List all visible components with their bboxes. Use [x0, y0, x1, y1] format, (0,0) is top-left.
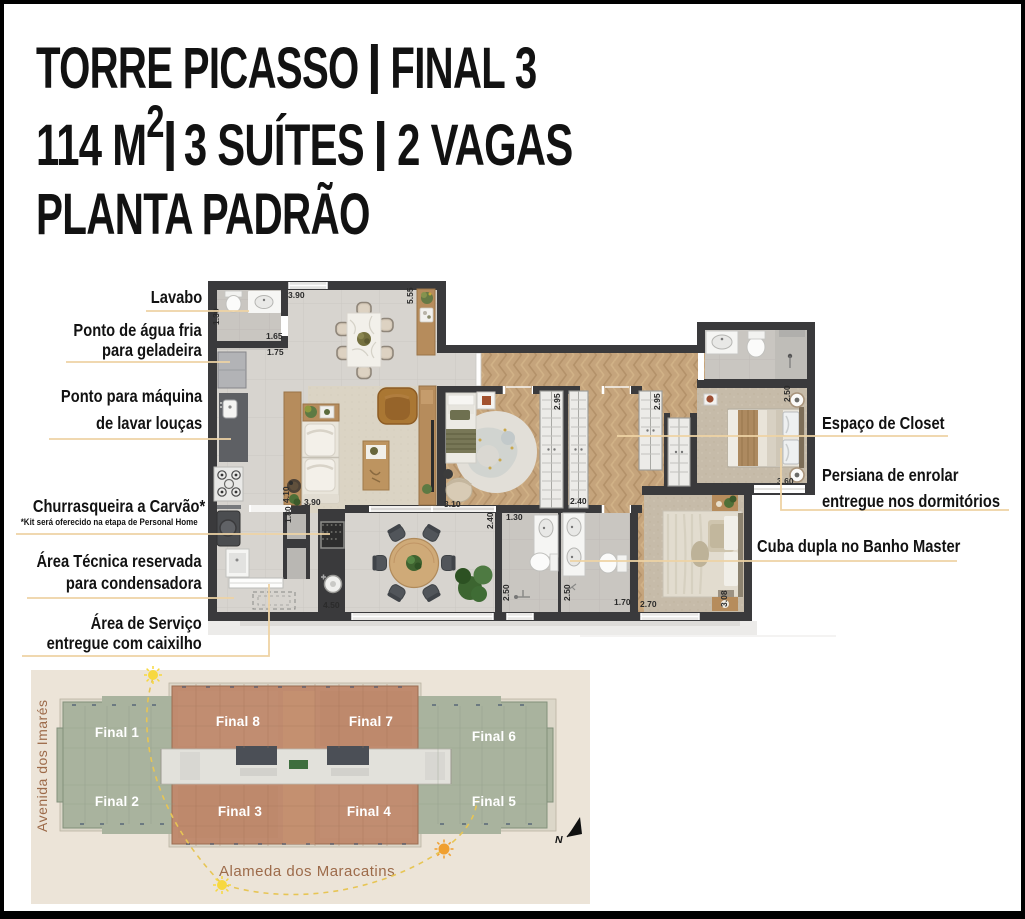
svg-text:1.70: 1.70 [614, 597, 631, 607]
svg-text:2.40: 2.40 [485, 512, 495, 529]
svg-text:Alameda dos Maracatins: Alameda dos Maracatins [219, 863, 395, 880]
svg-text:1.75: 1.75 [267, 347, 284, 357]
svg-text:Avenida dos Imarés: Avenida dos Imarés [34, 700, 50, 832]
svg-text:3.90: 3.90 [304, 497, 321, 507]
svg-text:2.70: 2.70 [640, 599, 657, 609]
svg-text:2.50: 2.50 [562, 584, 572, 601]
svg-text:3.10: 3.10 [444, 499, 461, 509]
svg-text:3.90: 3.90 [288, 290, 305, 300]
svg-text:Final 5: Final 5 [472, 794, 516, 809]
svg-text:Final 2: Final 2 [95, 794, 139, 809]
svg-text:5.55: 5.55 [405, 287, 415, 304]
svg-text:3.60: 3.60 [777, 476, 794, 486]
svg-text:2.95: 2.95 [652, 393, 662, 410]
svg-text:N: N [555, 834, 563, 846]
svg-text:Final 7: Final 7 [349, 714, 393, 729]
svg-text:Final 1: Final 1 [95, 725, 139, 740]
svg-text:2.40: 2.40 [570, 496, 587, 506]
svg-text:Final 4: Final 4 [347, 804, 391, 819]
svg-text:2.95: 2.95 [552, 393, 562, 410]
svg-text:Final 8: Final 8 [216, 714, 260, 729]
svg-text:3.08: 3.08 [719, 590, 729, 607]
svg-text:1.80: 1.80 [283, 506, 293, 523]
svg-text:Final 3: Final 3 [218, 804, 262, 819]
svg-text:1.30: 1.30 [506, 512, 523, 522]
svg-text:Final 6: Final 6 [472, 729, 516, 744]
svg-text:2.50: 2.50 [501, 584, 511, 601]
svg-text:4.50: 4.50 [323, 600, 340, 610]
svg-text:2.50: 2.50 [782, 385, 792, 402]
svg-text:4.10: 4.10 [281, 486, 291, 503]
svg-text:1.65: 1.65 [266, 331, 283, 341]
